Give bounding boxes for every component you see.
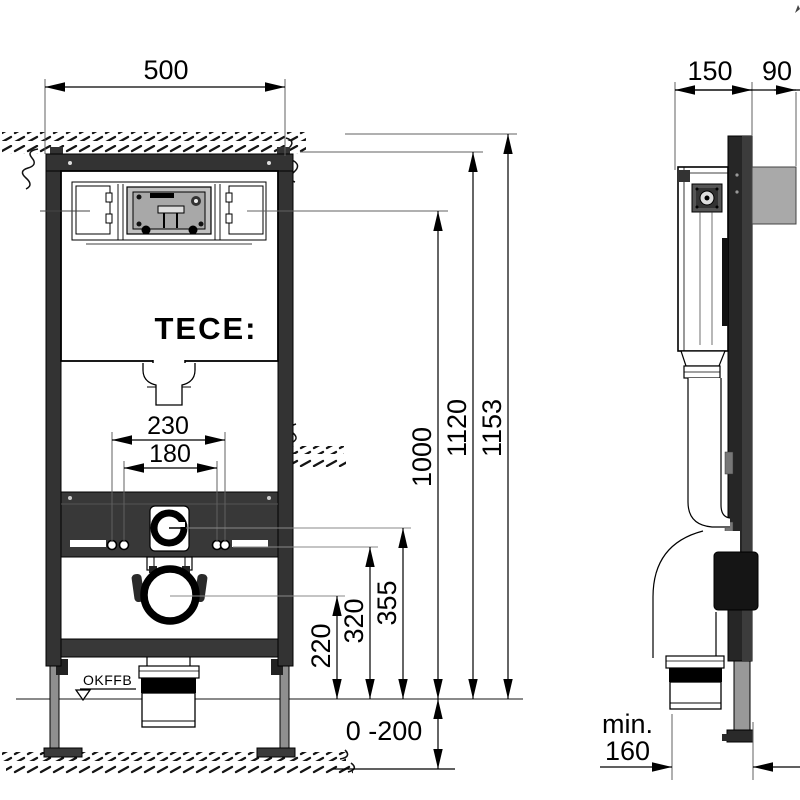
top-crossbar <box>46 154 293 171</box>
drain-connector-front <box>139 657 199 727</box>
dim-180: 180 <box>149 440 191 468</box>
dim-90: 90 <box>762 56 792 86</box>
dim-160: 160 <box>605 736 650 766</box>
brand-logo: TECE: <box>155 311 258 346</box>
right-rail <box>278 154 293 666</box>
left-leg <box>50 664 59 750</box>
dim-min-label: min. <box>602 709 653 739</box>
floor-level-marker: OKFFB <box>76 672 136 700</box>
side-view <box>653 136 796 742</box>
drain-connector-side <box>666 656 724 709</box>
wall-hatch-mid <box>286 424 346 467</box>
right-panel <box>229 186 263 234</box>
dim-1153: 1153 <box>477 399 507 457</box>
dim-320: 320 <box>339 598 369 643</box>
top-bar-screw-left <box>68 161 72 165</box>
drain-clamp-block <box>714 552 758 610</box>
dim-150: 150 <box>687 56 732 86</box>
left-foot <box>44 748 82 757</box>
dim-230: 230 <box>147 412 189 440</box>
lower-crossbar <box>61 639 278 657</box>
floor-level-label: OKFFB <box>83 672 132 688</box>
left-panel <box>76 186 110 234</box>
cistern-taper <box>681 351 725 366</box>
technical-drawing-canvas: TECE: <box>0 0 800 800</box>
corner-artifact-mark <box>795 5 800 13</box>
right-leg <box>280 664 289 750</box>
flush-bell <box>143 363 195 405</box>
top-bar-screw-right <box>267 161 271 165</box>
break-squiggle-top-left <box>22 149 38 189</box>
side-foot <box>727 730 753 742</box>
dim-220: 220 <box>306 623 336 668</box>
dim-355: 355 <box>372 580 402 625</box>
dim-1120: 1120 <box>442 399 472 457</box>
left-rail <box>46 154 61 666</box>
dim-floor-range: 0 -200 <box>346 716 423 746</box>
dim-1000: 1000 <box>407 427 437 487</box>
dim-500: 500 <box>143 55 188 85</box>
wc-frame-drawing: TECE: <box>0 0 800 800</box>
right-foot <box>257 748 295 757</box>
drain-outlet <box>144 569 196 621</box>
wall-block <box>752 167 796 224</box>
drain-bend-front <box>131 557 208 621</box>
